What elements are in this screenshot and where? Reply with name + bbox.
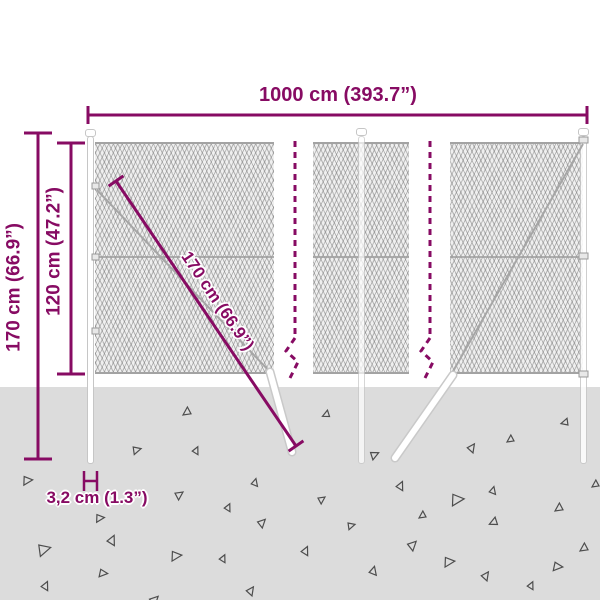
mesh-height-label: 120 cm (47.2”) [45, 171, 66, 331]
break-line-right [421, 141, 433, 378]
total-width-label: 1000 cm (393.7”) [188, 84, 488, 106]
dimension-brace-length [109, 176, 304, 451]
dimension-total-width [88, 106, 587, 124]
post-thickness-label: 3,2 cm (1.3”) [12, 489, 182, 508]
break-line-left [286, 141, 298, 378]
fence-dimension-diagram: 1000 cm (393.7”) 170 cm (66.9”) 120 cm (… [0, 0, 600, 600]
post-height-label: 170 cm (66.9”) [5, 207, 26, 367]
